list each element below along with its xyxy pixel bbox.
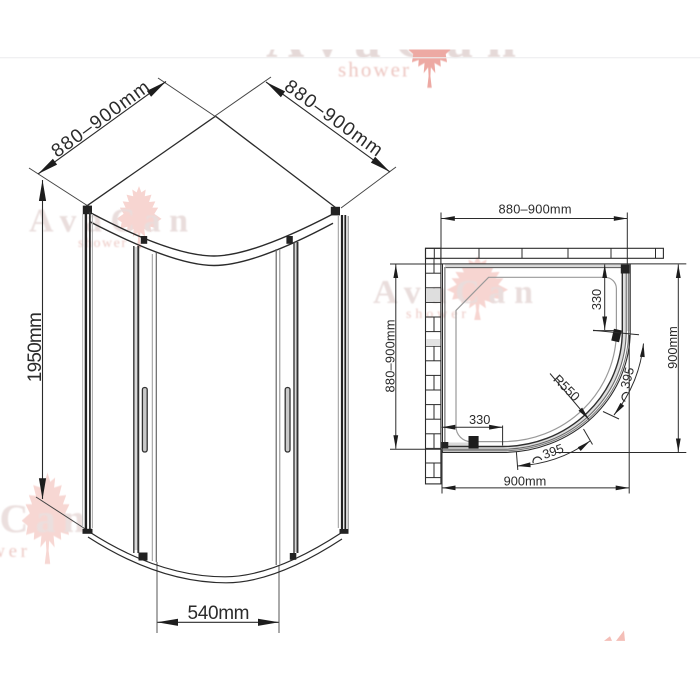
svg-text:880–900mm: 880–900mm	[382, 320, 397, 393]
svg-text:shower: shower	[0, 541, 28, 562]
svg-text:900mm: 900mm	[665, 326, 680, 369]
svg-text:330: 330	[469, 412, 490, 427]
svg-text:880–900mm: 880–900mm	[499, 202, 572, 217]
svg-text:shower: shower	[338, 58, 409, 82]
svg-text:1950mm: 1950mm	[25, 312, 46, 382]
svg-text:540mm: 540mm	[188, 603, 250, 624]
svg-text:AvaCan: AvaCan	[0, 496, 85, 541]
svg-text:900mm: 900mm	[504, 473, 547, 488]
svg-text:330: 330	[589, 289, 604, 310]
